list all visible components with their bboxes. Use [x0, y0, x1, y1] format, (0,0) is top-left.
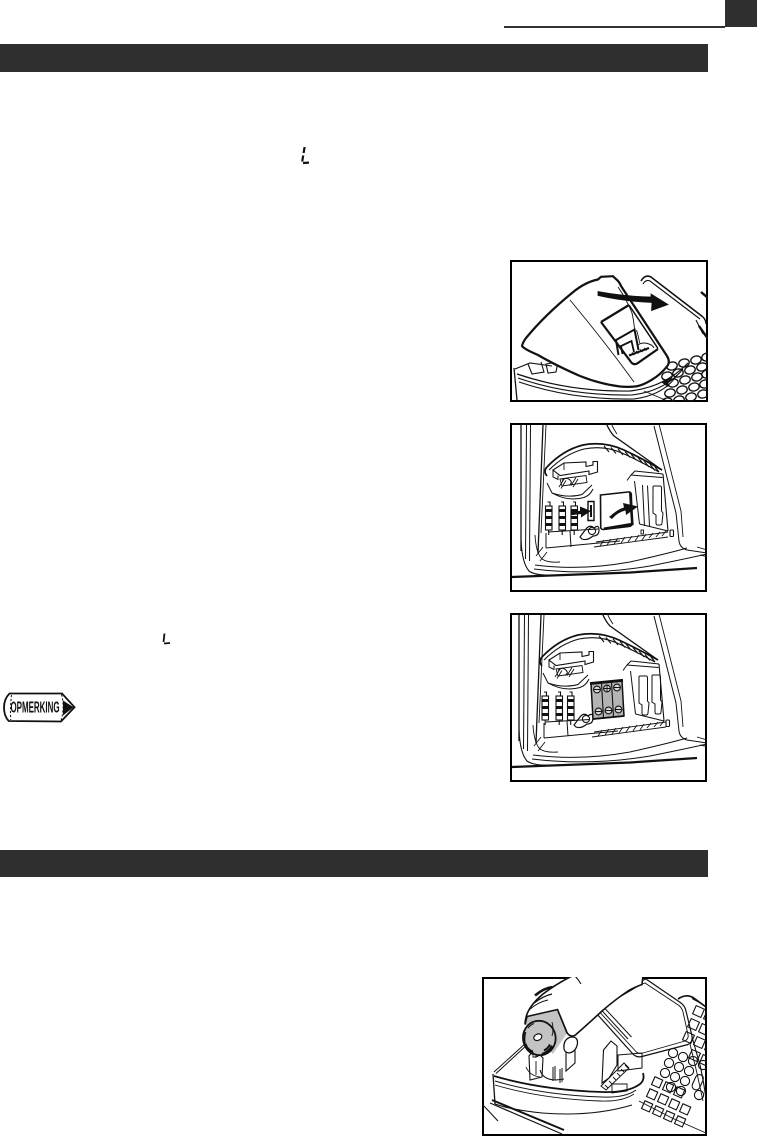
svg-text:OPMERKING: OPMERKING — [11, 700, 60, 717]
